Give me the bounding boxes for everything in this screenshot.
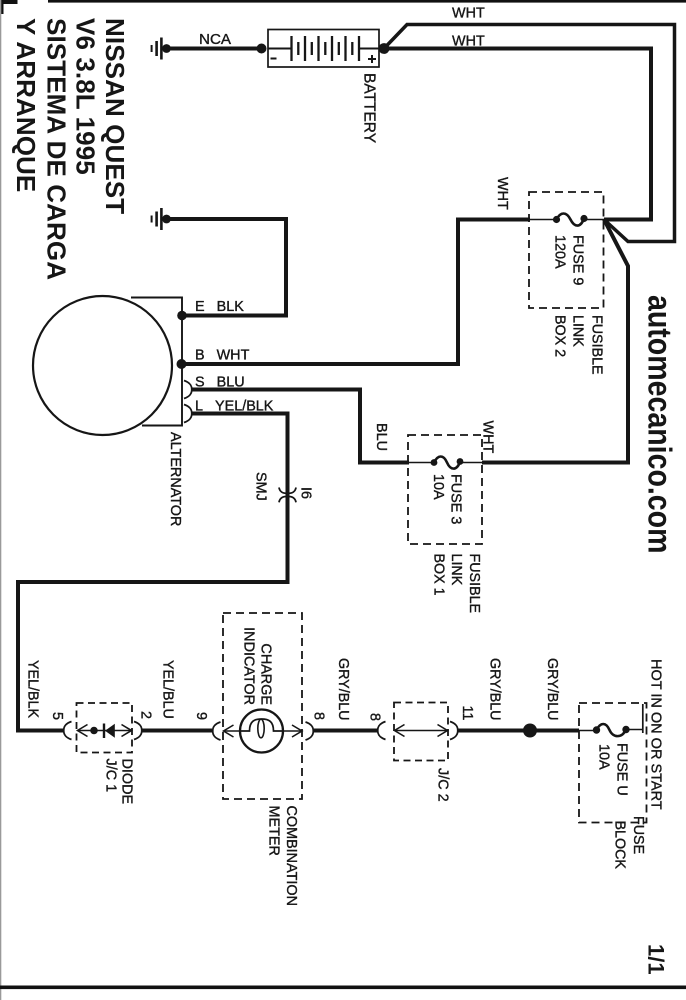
svg-text:FUSE 9: FUSE 9 [570,235,586,285]
svg-text:10A: 10A [596,744,612,770]
svg-text:2: 2 [138,711,154,719]
svg-text:automecanico.com: automecanico.com [641,295,678,553]
svg-text:CHARGE: CHARGE [258,643,274,705]
svg-text:WHT: WHT [480,421,496,454]
svg-text:BOX 1: BOX 1 [431,554,447,596]
svg-text:FUSIBLE: FUSIBLE [589,315,605,375]
svg-text:LINK: LINK [448,554,464,586]
svg-text:B WHT: B WHT [195,348,250,364]
svg-text:FUSE U: FUSE U [614,743,630,796]
svg-text:METER: METER [266,806,282,856]
svg-text:COMBINATION: COMBINATION [283,806,299,906]
svg-text:I6: I6 [298,487,314,499]
svg-text:SISTEMA DE CARGA: SISTEMA DE CARGA [41,18,71,280]
svg-text:5: 5 [49,712,65,720]
svg-text:GRY/BLU: GRY/BLU [335,658,351,721]
svg-text:BLOCK: BLOCK [612,821,628,870]
svg-text:GRY/BLU: GRY/BLU [544,658,560,721]
svg-text:V6 3.8L 1995: V6 3.8L 1995 [71,18,101,175]
svg-text:11: 11 [459,706,475,721]
svg-text:FUSIBLE: FUSIBLE [466,554,482,614]
svg-text:BLU: BLU [373,423,389,451]
svg-text:NCA: NCA [199,31,232,48]
svg-text:FUSE: FUSE [630,816,646,854]
svg-text:LINK: LINK [570,315,586,347]
svg-text:120A: 120A [552,235,568,269]
svg-text:INDICATOR: INDICATOR [241,627,257,705]
svg-text:WHT: WHT [452,33,485,49]
svg-text:E BLK: E BLK [195,299,244,315]
svg-text:WHT: WHT [494,177,510,210]
svg-text:BATTERY: BATTERY [361,73,378,143]
svg-text:WHT: WHT [452,6,485,22]
svg-text:1/1: 1/1 [644,944,669,975]
svg-text:9: 9 [193,712,209,720]
svg-text:BOX 2: BOX 2 [552,315,568,357]
svg-text:ALTERNATOR: ALTERNATOR [167,432,183,526]
svg-text:DIODE: DIODE [118,759,134,805]
svg-text:Y ARRANQUE: Y ARRANQUE [11,18,41,192]
svg-text:NISSAN QUEST: NISSAN QUEST [100,18,130,214]
svg-text:8: 8 [367,713,383,721]
svg-text:J/C 2: J/C 2 [435,768,451,802]
svg-text:10A: 10A [430,474,446,500]
svg-text:GRY/BLU: GRY/BLU [487,658,503,721]
svg-text:HOT IN ON OR START: HOT IN ON OR START [647,659,663,810]
svg-text:8: 8 [311,712,327,720]
svg-text:YEL/BLK: YEL/BLK [25,660,41,718]
svg-text:FUSE 3: FUSE 3 [448,474,464,524]
svg-text:SMJ: SMJ [253,472,269,501]
svg-text:YEL/BLU: YEL/BLU [160,660,176,719]
svg-text:J/C 1: J/C 1 [102,759,118,793]
